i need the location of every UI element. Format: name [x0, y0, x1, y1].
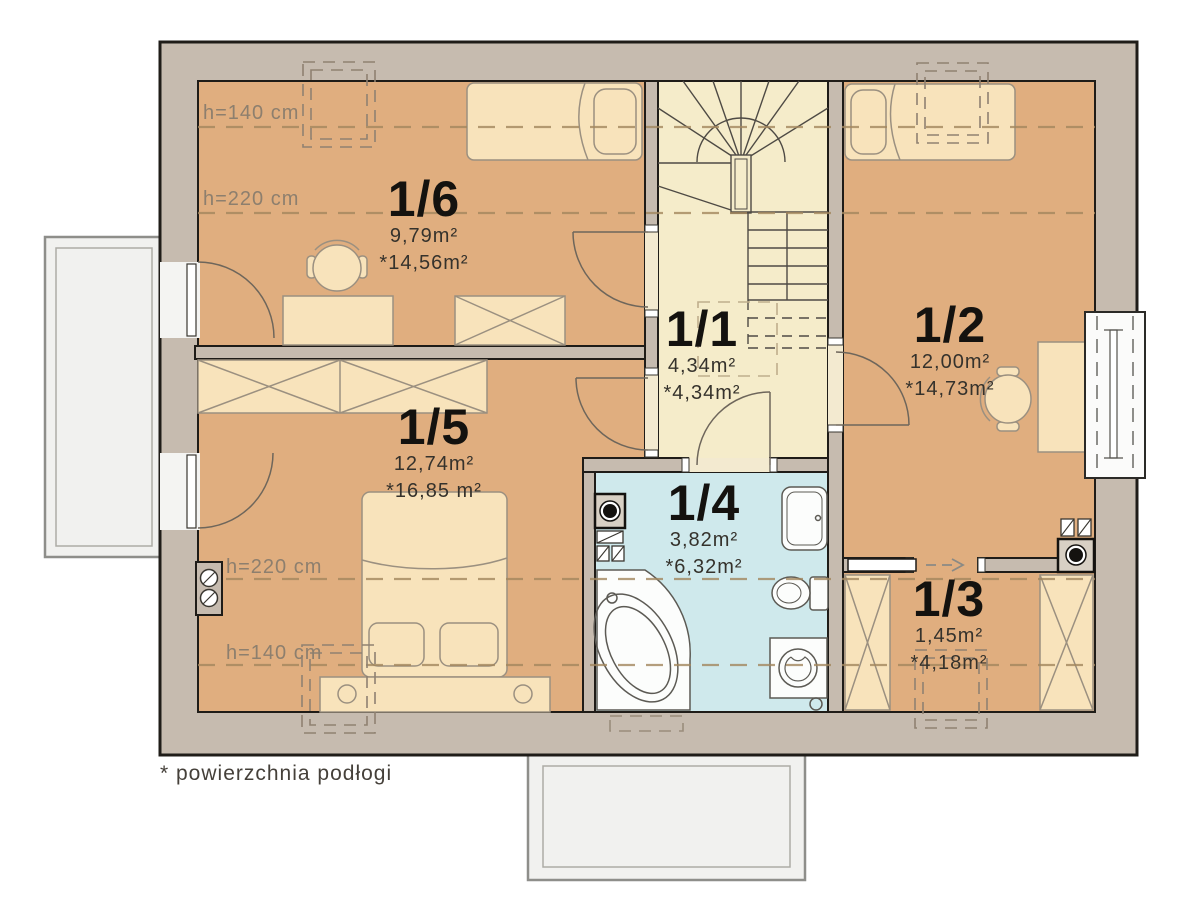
room-floor-area: *4,34m² [663, 382, 740, 405]
room-area: 4,34m² [663, 355, 740, 378]
room-floor-area: *16,85 m² [386, 480, 482, 503]
room-number: 1/6 [379, 176, 468, 222]
stair-newel-post [731, 155, 751, 213]
balcony-door-leaf [187, 455, 196, 528]
floor-area-footnote: * powierzchnia podłogi [160, 762, 392, 786]
sliding-door-leaf [848, 559, 916, 571]
height-line-label: h=140 cm [226, 642, 322, 665]
desk-icon [283, 296, 393, 345]
floor-plan: 1/6 9,79m² *14,56m² 1/1 4,34m² *4,34m² 1… [0, 0, 1200, 902]
pillow-icon [594, 89, 636, 154]
left-balcony [45, 237, 163, 557]
pillow-icon [369, 623, 424, 666]
bench-icon [320, 677, 550, 712]
room-floor-area: *6,32m² [665, 556, 742, 579]
pillow-icon [440, 623, 498, 666]
toilet-icon [772, 577, 828, 610]
right-wall-window [1085, 312, 1145, 478]
room-label-1-4: 1/4 3,82m² *6,32m² [665, 480, 742, 579]
hall-1-1-floor [658, 81, 828, 472]
chimney-left [196, 562, 222, 615]
room-number: 1/2 [905, 302, 994, 348]
room-floor-area: *14,73m² [905, 378, 994, 401]
bottom-balcony [528, 753, 805, 880]
room-area: 12,74m² [386, 453, 482, 476]
wardrobe-icon [1040, 575, 1093, 710]
room-label-1-3: 1/3 1,45m² *4,18m² [910, 576, 987, 675]
room-label-1-6: 1/6 9,79m² *14,56m² [379, 176, 468, 275]
room-number: 1/1 [663, 306, 740, 352]
wardrobe-icon [455, 296, 565, 345]
room-label-1-5: 1/5 12,74m² *16,85 m² [386, 404, 482, 503]
room-floor-area: *14,56m² [379, 252, 468, 275]
room-area: 3,82m² [665, 529, 742, 552]
room-area: 9,79m² [379, 225, 468, 248]
room-number: 1/4 [665, 480, 742, 526]
height-line-label: h=220 cm [226, 556, 322, 579]
height-line-label: h=140 cm [203, 102, 299, 125]
room-area: 12,00m² [905, 351, 994, 374]
sink-icon [782, 487, 827, 550]
room-number: 1/3 [910, 576, 987, 622]
balcony-door-leaf [187, 264, 196, 336]
height-line-label: h=220 cm [203, 188, 299, 211]
room-number: 1/5 [386, 404, 482, 450]
room-label-1-1: 1/1 4,34m² *4,34m² [663, 306, 740, 405]
room-floor-area: *4,18m² [910, 652, 987, 675]
room-area: 1,45m² [910, 625, 987, 648]
room-label-1-2: 1/2 12,00m² *14,73m² [905, 302, 994, 401]
wardrobe-icon [845, 575, 890, 710]
pillow-icon [851, 90, 886, 154]
